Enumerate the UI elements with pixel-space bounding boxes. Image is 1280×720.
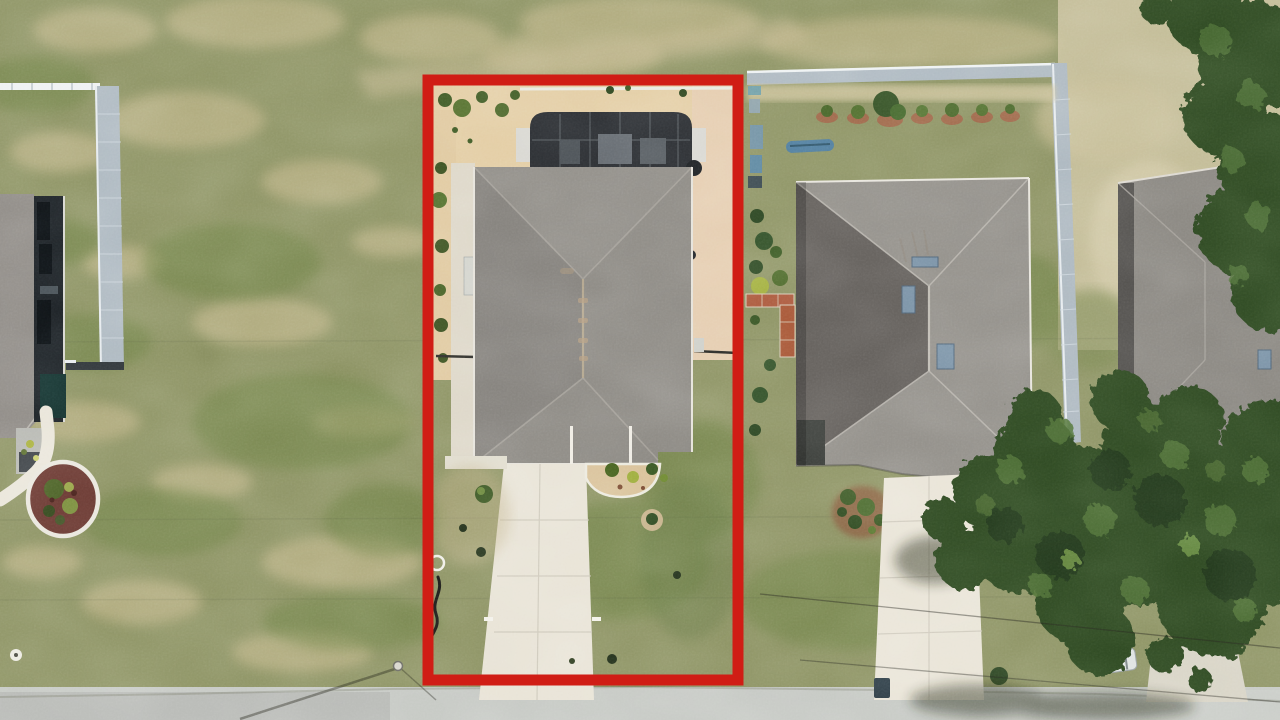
aerial-photo-canvas: [0, 0, 1280, 720]
aerial-photo: [0, 0, 1280, 720]
photo-grain-overlay: [0, 0, 1280, 720]
